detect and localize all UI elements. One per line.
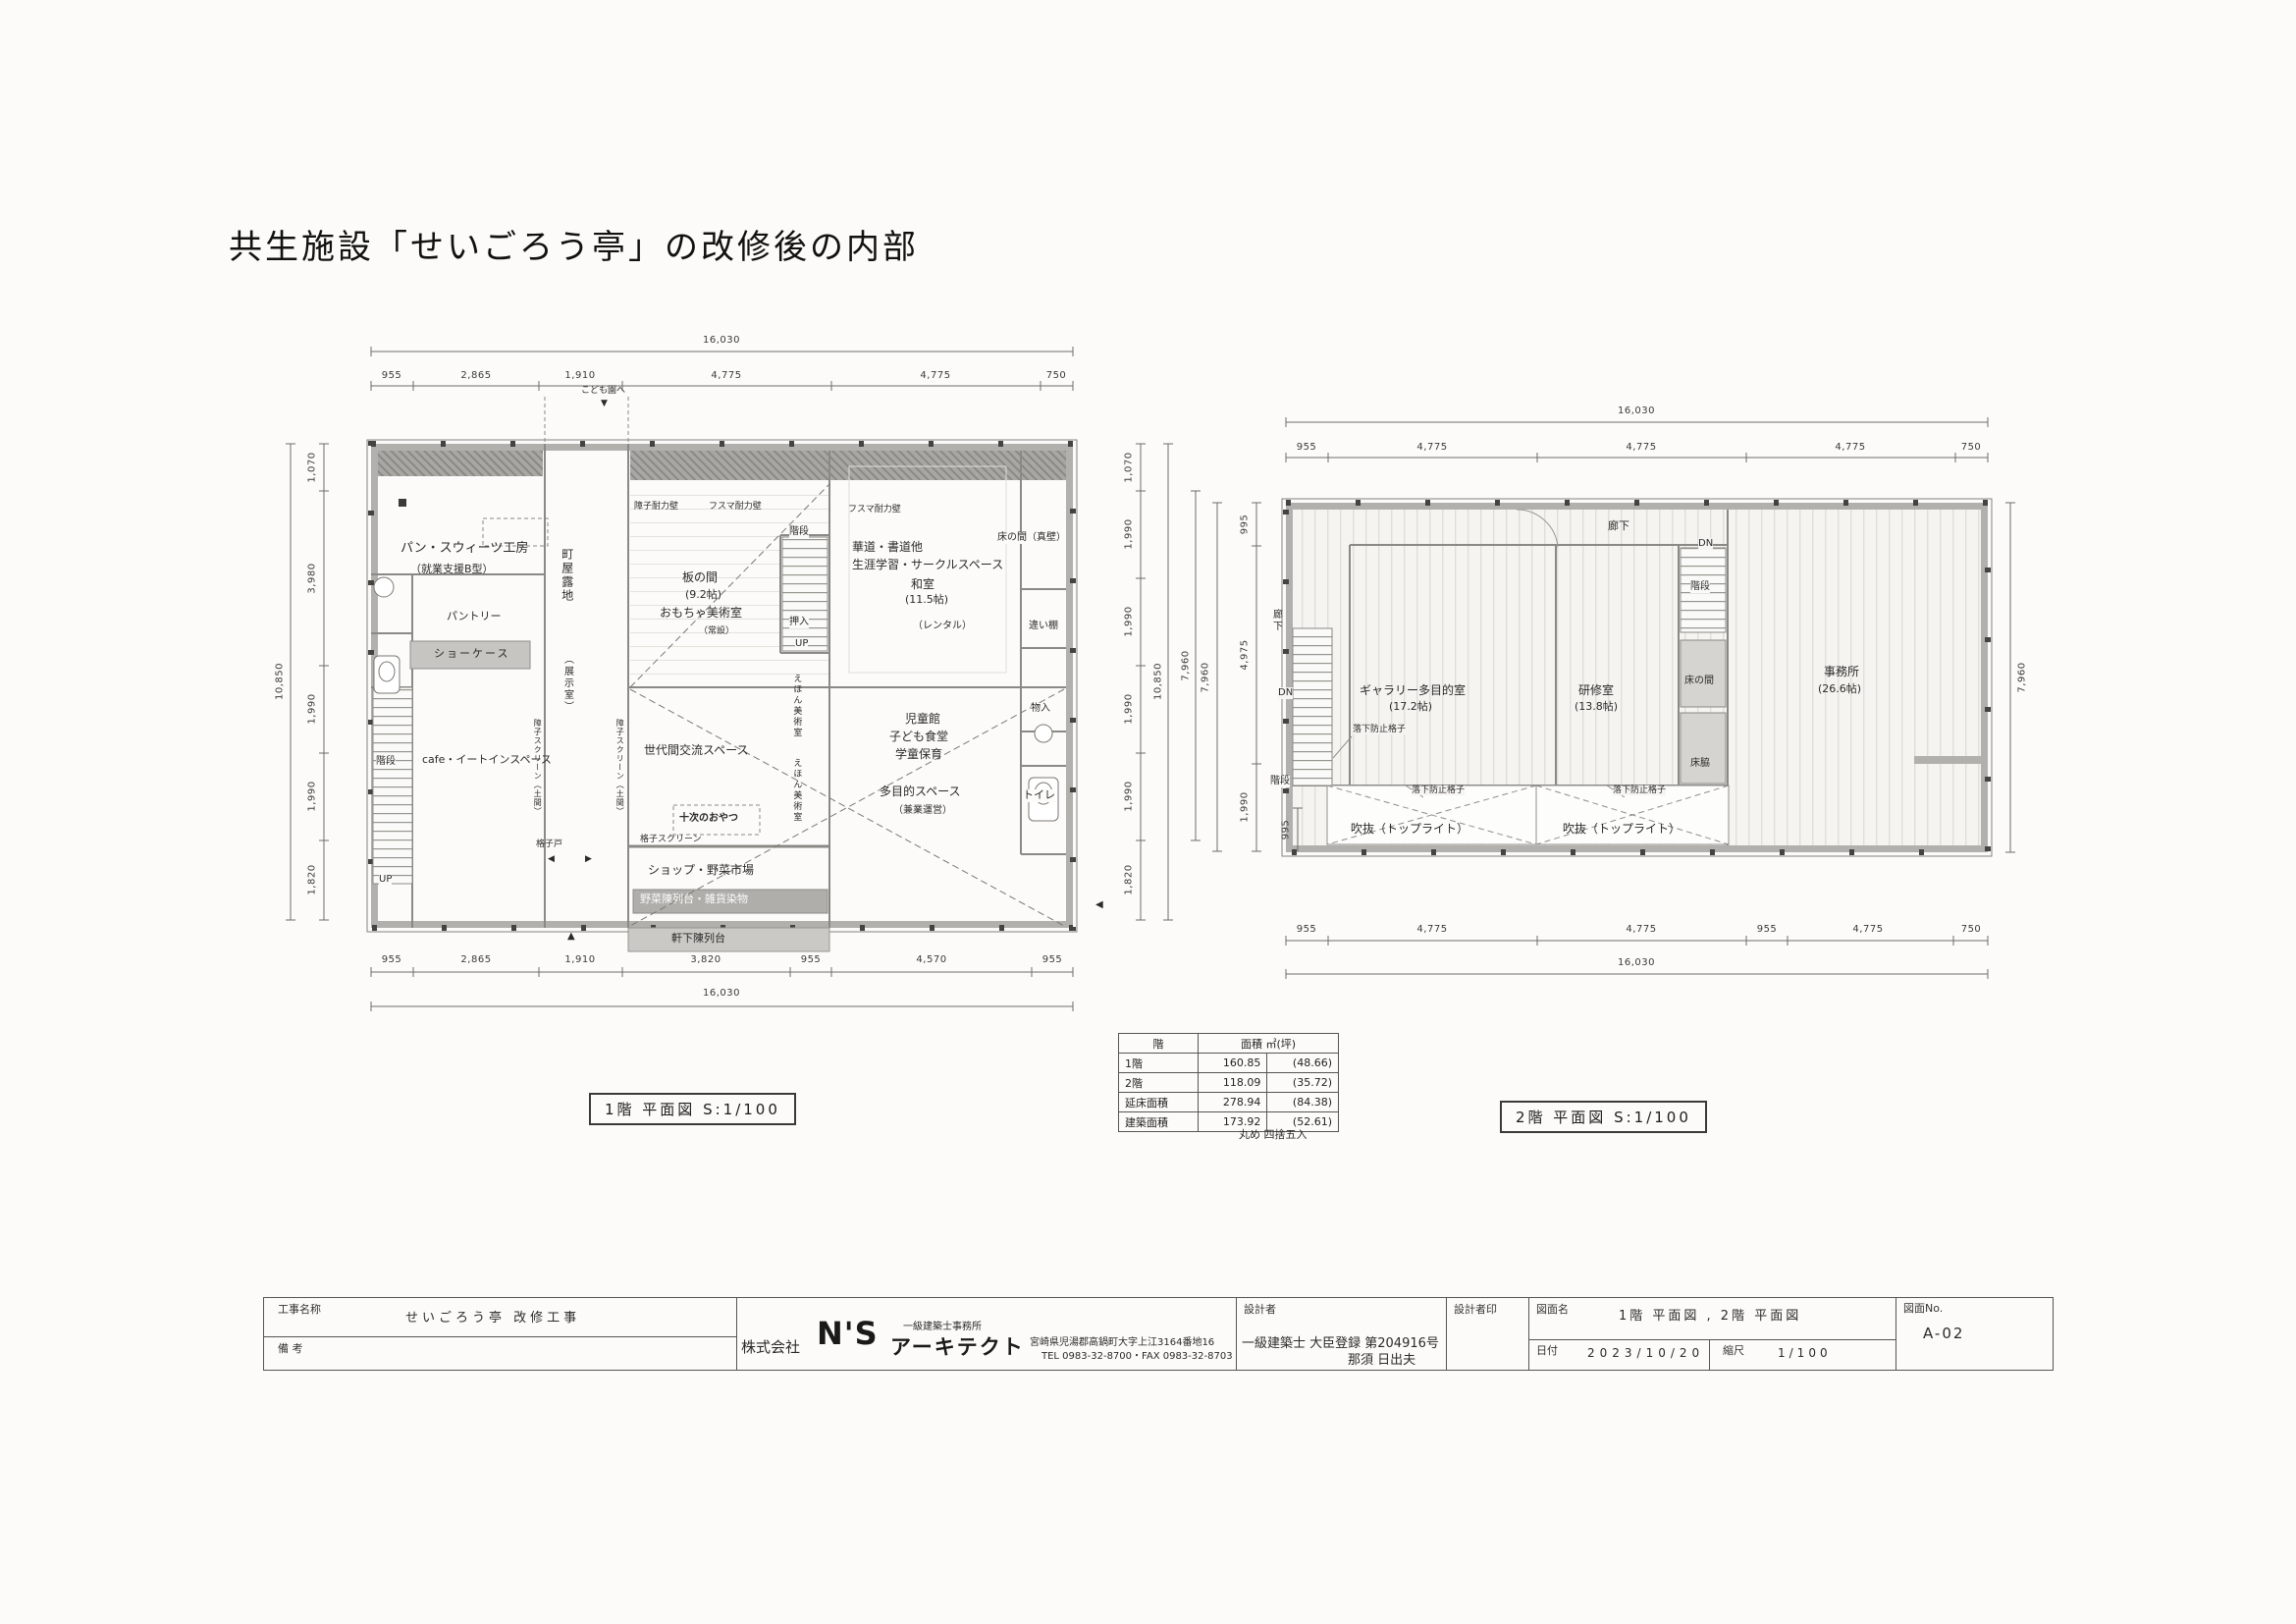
plan1-label-monoire: 物入 [1031, 703, 1050, 715]
plan2-label-jimusho-size: (26.6帖) [1818, 683, 1861, 696]
area-row-2f-sqm: 118.09 [1199, 1073, 1267, 1093]
plan2-dim-right-total: 7,960 [2016, 662, 2028, 692]
drawing-sheet: 共生施設「せいごろう亭」の改修後の内部 16,030 955 2,865 1,9… [0, 0, 2296, 1624]
date-value: 2023/10/20 [1587, 1347, 1704, 1361]
area-row-total-label: 延床面積 [1119, 1093, 1199, 1112]
plan2-dim-top-1: 4,775 [1416, 442, 1447, 454]
plan1-label-oshiire: 押入 [789, 617, 809, 628]
date-label: 日付 [1536, 1345, 1558, 1358]
plan1-dim-top-total: 16,030 [703, 335, 740, 347]
title-block-divider-2 [736, 1298, 737, 1370]
plan1-dim-top-2: 1,910 [564, 370, 595, 382]
plan2-label-rakka-3: 落下防止格子 [1613, 785, 1666, 795]
plan1-dim-bottom-1: 2,865 [460, 954, 491, 966]
plan1-label-toilet: トイレ [1023, 789, 1055, 802]
plan1-dim-bottom-5: 4,570 [916, 954, 946, 966]
scale-value: 1/100 [1778, 1347, 1832, 1361]
area-row-total-tsubo: (84.38) [1267, 1093, 1339, 1112]
plan1-dim-top-0: 955 [382, 370, 402, 382]
plan1-dim-bottom-0: 955 [382, 954, 402, 966]
plan1-label-rental: （レンタル） [913, 621, 972, 632]
title-block-divider-6 [1528, 1339, 1896, 1340]
plan1-dim-top-1: 2,865 [460, 370, 491, 382]
plan1-label-showcase: ショーケース [434, 648, 509, 661]
plan1-label-kaidan-left: 階段 [376, 756, 396, 768]
plan1-dim-bottom-2: 1,910 [564, 954, 595, 966]
plan2-label-tokowaki: 床脇 [1690, 758, 1710, 770]
plan1-label-machiya-sub: （展示室） [561, 654, 573, 713]
plan1-walls [367, 440, 1077, 932]
title-block-divider-4 [1446, 1298, 1447, 1370]
company-tel: TEL 0983-32-8700・FAX 0983-32-8703 [1041, 1351, 1233, 1363]
plan2-label-fukinuke-1: 吹抜（トップライト） [1351, 823, 1468, 837]
plan2-dim-bottom-0: 955 [1297, 924, 1317, 936]
plan1-label-chigaidana: 違い棚 [1029, 621, 1058, 632]
plan2-label-rouka-left: 廊下 [1270, 609, 1282, 632]
titleblock-koji-value: せいごろう亭 改修工事 [405, 1312, 580, 1326]
plan1-dim-right-1: 1,990 [1123, 518, 1135, 549]
area-table-row-1f: 1階 160.85 (48.66) [1119, 1054, 1339, 1073]
area-table-row-total-floor: 延床面積 278.94 (84.38) [1119, 1093, 1339, 1112]
plan1-label-washitsu: 和室 [911, 578, 934, 592]
plan2-caption: 2階 平面図 S:1/100 [1500, 1101, 1707, 1133]
plan2-label-gallery-size: (17.2帖) [1389, 701, 1432, 714]
plan1-dim-left-total: 10,850 [274, 663, 286, 700]
plan1-dim-bottom-3: 3,820 [690, 954, 721, 966]
plan2-label-dn-left: DN [1278, 687, 1293, 699]
title-block: 工事名称 せいごろう亭 改修工事 備 考 株式会社 N'S 一級建築士事務所 ア… [263, 1297, 2054, 1371]
plan2-label-rakka-1: 落下防止格子 [1353, 725, 1406, 734]
plan1-label-gakudo: 学童保育 [895, 748, 942, 762]
plan1-label-up-center: UP [795, 638, 808, 650]
plan1-label-jido: 児童館 [905, 713, 940, 727]
plan1-entry-down-marker: ▼ [601, 399, 608, 408]
plan1-label-kabe-shoji: 障子耐力壁 [634, 502, 678, 512]
plan2-label-kenshu: 研修室 [1578, 684, 1614, 698]
plan1-entry-up-marker: ▲ [567, 931, 575, 943]
company-logo-ns: N'S [817, 1316, 879, 1352]
plan2-dim-bottom-4: 4,775 [1852, 924, 1883, 936]
company-name: アーキテクト [890, 1335, 1025, 1359]
plan1-label-ehon-2: えほん美術室 [791, 758, 801, 823]
plan1-label-itanoma-size: (9.2帖) [685, 589, 721, 602]
plan1-label-koshido: 格子戸 [536, 839, 562, 849]
plan1-dim-top-4: 4,775 [920, 370, 950, 382]
plan1-dim-right-0: 1,070 [1123, 452, 1135, 482]
plan2-dim-top-3: 4,775 [1835, 442, 1865, 454]
plan2-label-tokonoma: 床の間 [1684, 676, 1714, 687]
plan1-door-left-marker: ◀ [548, 854, 555, 864]
plan1-label-shogai: 生涯学習・サークルスペース [852, 559, 1003, 572]
plan1-label-kaidan-center: 階段 [789, 526, 809, 538]
title-block-divider-7 [1709, 1339, 1710, 1370]
area-row-2f-tsubo: (35.72) [1267, 1073, 1339, 1093]
plan2-label-jimusho: 事務所 [1824, 666, 1859, 679]
plan1-dim-right-3: 1,990 [1123, 693, 1135, 724]
designer-name: 那須 日出夫 [1348, 1354, 1415, 1369]
plan1-label-kodomo-shokudo: 子ども食堂 [889, 731, 948, 744]
plan1-label-toy: おもちゃ美術室 [660, 607, 742, 621]
company-office-type: 一級建築士事務所 [903, 1322, 982, 1333]
company-address: 宮崎県児湯郡高鍋町大字上江3164番地16 [1030, 1337, 1214, 1349]
title-block-divider-3 [1236, 1298, 1237, 1370]
plan2-label-rakka-2: 落下防止格子 [1412, 785, 1465, 795]
plan1-section-marker: ◀ [1095, 899, 1103, 911]
plan1-label-ehon-1: えほん美術室 [791, 674, 801, 738]
plan1-dim-right-4: 1,990 [1123, 781, 1135, 811]
page-title: 共生施設「せいごろう亭」の改修後の内部 [229, 229, 919, 267]
plan1-dim-left-2: 1,990 [306, 693, 318, 724]
plan1-dim-right-5: 1,820 [1123, 864, 1135, 894]
area-table-row-2f: 2階 118.09 (35.72) [1119, 1073, 1339, 1093]
plan1-label-bread-sub: （就業支援B型） [410, 564, 494, 576]
plan1-label-pantry: パントリー [447, 611, 502, 623]
drawing-name-value: 1階 平面図 , 2階 平面図 [1619, 1310, 1801, 1325]
title-block-divider-1 [264, 1336, 736, 1337]
plan2-label-dn-top: DN [1698, 538, 1713, 550]
plan1-label-bread: パン・スウィーツ工房 [400, 542, 528, 557]
plan1-label-kabe-fusuma-1: フスマ耐力壁 [709, 502, 762, 512]
plan2-dim-top-4: 750 [1961, 442, 1982, 454]
plan1-label-oyatsu: 十次のおやつ [679, 813, 738, 825]
plan2-dim-bottom-3: 955 [1757, 924, 1778, 936]
plan2-dim-top-2: 4,775 [1626, 442, 1656, 454]
plan2-dim-left-total: 7,960 [1200, 662, 1211, 692]
area-header-area: 面積 ㎡(坪) [1199, 1034, 1339, 1054]
title-block-divider-8 [1896, 1298, 1896, 1370]
drawing-no-label: 図面No. [1903, 1303, 1943, 1316]
plan2-dim-bottom-5: 750 [1961, 924, 1982, 936]
area-table: 階 面積 ㎡(坪) 1階 160.85 (48.66) 2階 118.09 (3… [1118, 1033, 1339, 1132]
plan1-dim-top-5: 750 [1046, 370, 1067, 382]
plan2-label-rouka-top: 廊下 [1608, 520, 1629, 533]
plan1-label-shoji-screen-right: 障子スクリーン（土間） [615, 719, 624, 816]
plan1-label-up-left: UP [379, 874, 392, 886]
drawing-name-label: 図面名 [1536, 1304, 1569, 1317]
drawing-no-value: A-02 [1923, 1326, 1964, 1342]
plan2-dim-bottom-total: 16,030 [1618, 957, 1655, 969]
plan1-dim-left-1: 3,980 [306, 563, 318, 593]
plan1-label-sedaikan: 世代間交流スペース [644, 744, 749, 758]
plan1-dim-bottom-6: 955 [1042, 954, 1063, 966]
plan1-label-tokonoma: 床の間（真壁） [997, 532, 1066, 544]
plan1-label-yasai: 野菜陳列台・雑貨染物 [640, 893, 748, 906]
area-table-header-row: 階 面積 ㎡(坪) [1119, 1034, 1339, 1054]
plan2-dim-bottom-2: 4,775 [1626, 924, 1656, 936]
plan2-dim-left-2: 1,990 [1239, 791, 1251, 822]
plan1-label-kabe-fusuma-2: フスマ耐力壁 [848, 505, 901, 514]
designer-label: 設計者 [1244, 1304, 1276, 1317]
plan1-dim-top-3: 4,775 [711, 370, 741, 382]
plan2-label-kaidan-left: 階段 [1270, 776, 1290, 787]
plan1-label-itanoma: 板の間 [682, 571, 718, 585]
area-row-1f-label: 1階 [1119, 1054, 1199, 1073]
plan1-dim-left-3: 1,990 [306, 781, 318, 811]
plan1-label-koshi-screen: 格子スクリーン [640, 835, 702, 844]
scale-label: 縮尺 [1723, 1345, 1744, 1358]
plan1-label-kodomo-en: こども園へ [581, 386, 625, 396]
plan1-dim-bottom-total: 16,030 [703, 988, 740, 1000]
titleblock-koji-label: 工事名称 [278, 1304, 321, 1317]
plan2-dim-left-inner: 995 [1280, 820, 1292, 840]
plan1-dim-right-2: 1,990 [1123, 606, 1135, 636]
plan2-dim-left-1: 4,975 [1239, 639, 1251, 670]
area-row-2f-label: 2階 [1119, 1073, 1199, 1093]
area-row-total-sqm: 278.94 [1199, 1093, 1267, 1112]
plan1-label-machiya: 町屋露地 [560, 548, 573, 603]
plan1-label-kado: 華道・書道他 [852, 541, 923, 555]
plan1-dim-left-4: 1,820 [306, 864, 318, 894]
plan1-dim-right-total2: 7,960 [1180, 650, 1192, 680]
plan2-label-kenshu-size: (13.8帖) [1575, 701, 1618, 714]
plan2-dim-left-0: 995 [1239, 514, 1251, 535]
plan1-label-toy-sub: （常設） [699, 626, 734, 636]
plan1-label-tamokuteki: 多目的スペース [880, 785, 961, 799]
plan1-label-shoji-screen-left: 障子スクリーン（土間） [533, 719, 542, 816]
area-header-floor: 階 [1119, 1034, 1199, 1054]
titleblock-biko-label: 備 考 [278, 1343, 303, 1356]
plan1-door-right-marker: ▶ [585, 854, 592, 864]
plan1-label-nokishita: 軒下陳列台 [671, 933, 725, 946]
plan1-dim-left-0: 1,070 [306, 452, 318, 482]
plan2-label-kaidan-right: 階段 [1690, 581, 1710, 593]
plan2-dim-top-total: 16,030 [1618, 406, 1655, 417]
plan2-label-fukinuke-2: 吹抜（トップライト） [1563, 823, 1681, 837]
area-row-1f-tsubo: (48.66) [1267, 1054, 1339, 1073]
area-row-1f-sqm: 160.85 [1199, 1054, 1267, 1073]
plan1-caption: 1階 平面図 S:1/100 [589, 1093, 796, 1125]
plan2-label-gallery: ギャラリー多目的室 [1360, 684, 1466, 698]
plan1-dim-bottom-4: 955 [801, 954, 822, 966]
designer-license: 一級建築士 大臣登録 第204916号 [1242, 1337, 1439, 1352]
area-table-note: 丸め 四捨五入 [1239, 1129, 1308, 1142]
plan1-label-washitsu-size: (11.5帖) [905, 594, 948, 607]
plan1-label-shop: ショップ・野菜市場 [648, 864, 754, 878]
plan2-dim-bottom-1: 4,775 [1416, 924, 1447, 936]
title-block-divider-5 [1528, 1298, 1529, 1370]
area-row-building-label: 建築面積 [1119, 1112, 1199, 1132]
plan1-label-tamokuteki-sub: （兼業運営） [893, 805, 952, 817]
company-prefix: 株式会社 [741, 1339, 800, 1356]
plan2-dim-top-0: 955 [1297, 442, 1317, 454]
designer-seal-label: 設計者印 [1454, 1304, 1497, 1317]
plan1-dim-right-total1: 10,850 [1152, 663, 1164, 700]
